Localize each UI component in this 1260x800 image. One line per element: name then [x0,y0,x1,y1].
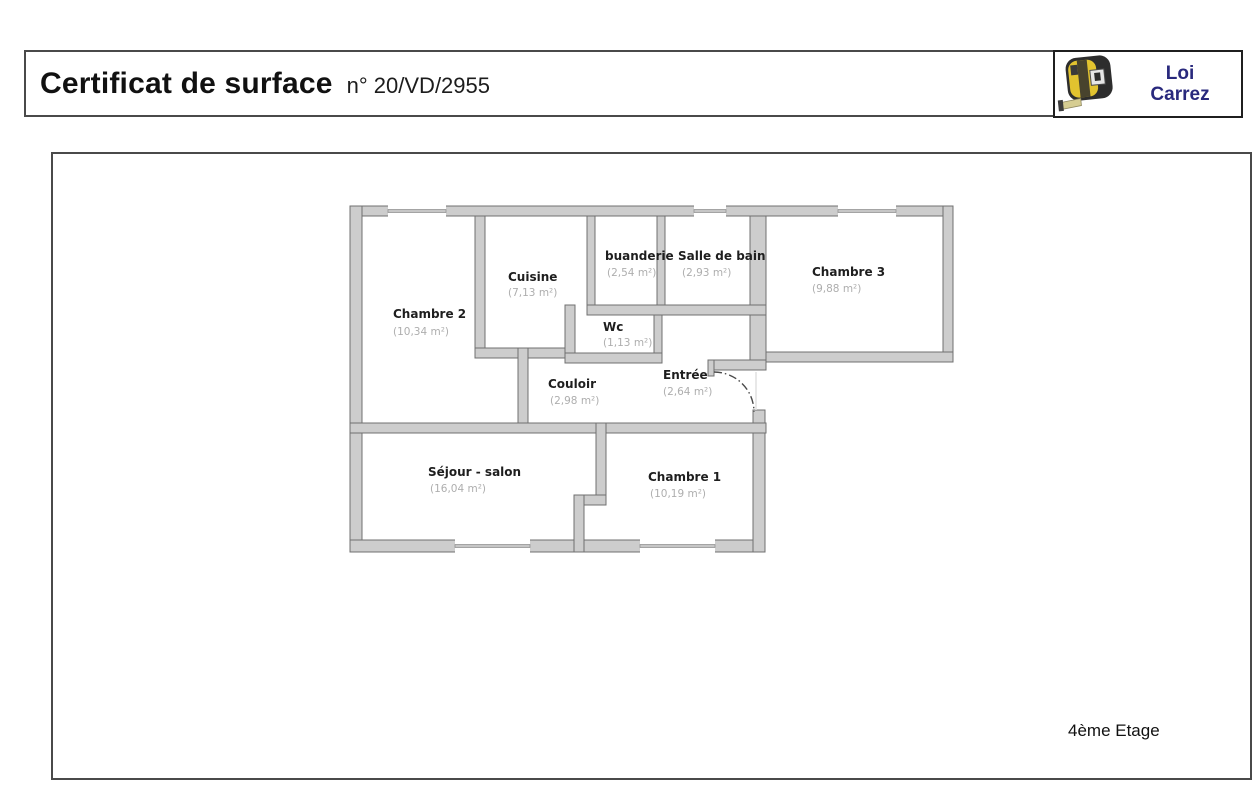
room-name-salle-de-bain: Salle de bain [678,249,766,263]
room-name-sejour-salon: Séjour - salon [428,465,521,479]
tape-measure-icon [1055,54,1119,114]
certificate-number: n° 20/VD/2955 [347,73,490,99]
room-name-couloir: Couloir [548,377,596,391]
room-area-wc: (1,13 m²) [603,337,652,349]
room-area-chambre-2: (10,34 m²) [393,326,449,338]
room-area-salle-de-bain: (2,93 m²) [682,267,731,279]
room-labels: Chambre 2 (10,34 m²) Cuisine (7,13 m²) b… [393,249,885,500]
certificate-page: Certificat de surface n° 20/VD/2955 Loi … [0,0,1260,800]
room-name-cuisine: Cuisine [508,270,557,284]
room-area-entree: (2,64 m²) [663,386,712,398]
room-name-wc: Wc [603,320,623,334]
entry-door-arc [714,372,756,412]
room-area-couloir: (2,98 m²) [550,395,599,407]
logo-text-line1: Loi [1119,63,1241,84]
floor-label: 4ème Etage [1068,721,1160,741]
room-area-chambre-3: (9,88 m²) [812,283,861,295]
room-area-chambre-1: (10,19 m²) [650,488,706,500]
logo-text: Loi Carrez [1119,63,1241,105]
room-name-chambre-1: Chambre 1 [648,470,721,484]
room-name-entree: Entrée [663,368,708,382]
room-area-buanderie: (2,54 m²) [607,267,656,279]
room-name-chambre-2: Chambre 2 [393,307,466,321]
loi-carrez-logo: Loi Carrez [1053,50,1243,118]
logo-text-line2: Carrez [1119,84,1241,105]
floor-plan: Chambre 2 (10,34 m²) Cuisine (7,13 m²) b… [345,200,960,560]
document-title: Certificat de surface [40,67,333,101]
room-area-cuisine: (7,13 m²) [508,287,557,299]
room-name-buanderie: buanderie [605,249,674,263]
room-name-chambre-3: Chambre 3 [812,265,885,279]
room-area-sejour-salon: (16,04 m²) [430,483,486,495]
